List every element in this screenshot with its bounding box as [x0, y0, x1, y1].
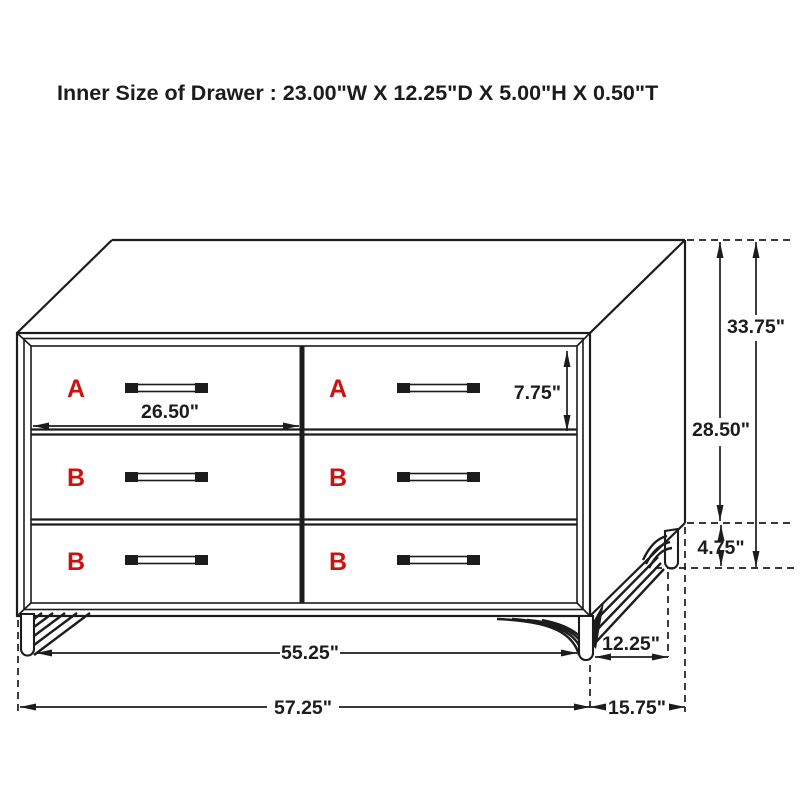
diagram-svg: Inner Size of Drawer : 23.00"W X 12.25"D… — [0, 0, 800, 800]
front-left-leg — [21, 613, 90, 656]
drawer-letter-top-left: A — [67, 375, 85, 403]
page-title: Inner Size of Drawer : 23.00"W X 12.25"D… — [57, 81, 658, 105]
dim-overall-depth: 15.75" — [590, 697, 685, 719]
dim-overall-height: 33.75" — [727, 242, 785, 567]
dresser-top-face — [17, 240, 685, 333]
dim-foot-span-width: 55.25" — [36, 642, 577, 664]
dim-label-case-height: 28.50" — [692, 419, 750, 441]
dim-label-drawer-front-width: 26.50" — [141, 401, 199, 423]
drawer-handle — [125, 383, 208, 393]
drawer-letter-top-right: A — [329, 375, 347, 403]
drawer-handle — [125, 555, 208, 565]
dim-leg-height: 4.75" — [697, 525, 744, 566]
dim-label-overall-depth: 15.75" — [608, 697, 666, 719]
dim-drawer-front-width: 26.50" — [33, 401, 299, 426]
dim-foot-span-depth: 12.25" — [595, 633, 668, 657]
drawer-letter-middle-right: B — [329, 464, 347, 492]
dim-label-drawer-front-height: 7.75" — [514, 382, 561, 404]
dim-case-height: 28.50" — [692, 242, 750, 521]
dim-overall-width: 57.25" — [20, 697, 590, 719]
drawer-letter-bottom-right: B — [329, 548, 347, 576]
drawer-letter-bottom-left: B — [67, 548, 85, 576]
dim-label-overall-height: 33.75" — [727, 316, 785, 338]
dresser-dimension-diagram: Inner Size of Drawer : 23.00"W X 12.25"D… — [0, 0, 800, 800]
drawer-handle — [397, 383, 480, 393]
dim-label-foot-span-width: 55.25" — [281, 642, 339, 664]
dresser-front-face — [17, 333, 590, 616]
dim-drawer-front-height: 7.75" — [514, 351, 567, 431]
drawer-handle — [397, 555, 480, 565]
drawer-letter-middle-left: B — [67, 464, 85, 492]
dim-label-leg-height: 4.75" — [697, 537, 744, 559]
drawer-handle — [125, 472, 208, 482]
dim-label-overall-width: 57.25" — [274, 697, 332, 719]
drawer-handle — [397, 472, 480, 482]
dim-label-foot-span-depth: 12.25" — [602, 633, 660, 655]
